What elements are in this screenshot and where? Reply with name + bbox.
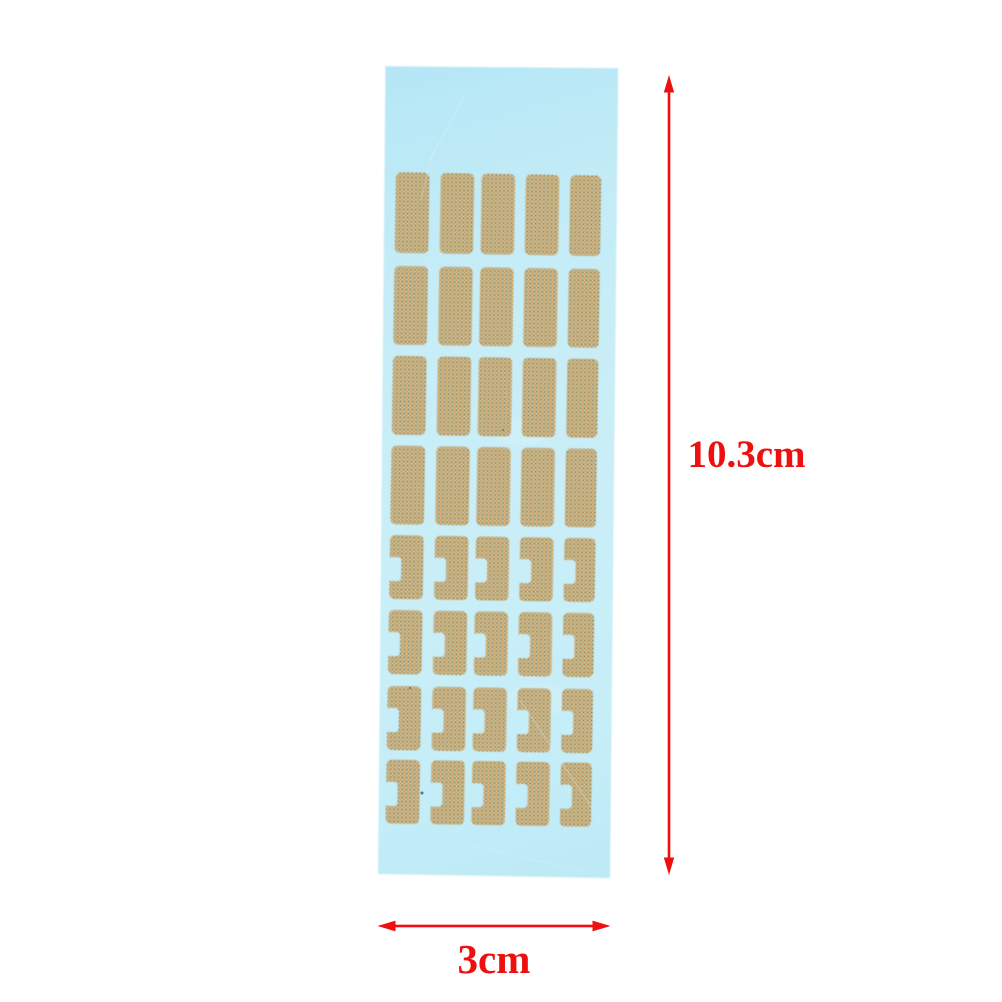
svg-text:3cm: 3cm (458, 936, 531, 982)
svg-text:10.3cm: 10.3cm (688, 433, 806, 476)
